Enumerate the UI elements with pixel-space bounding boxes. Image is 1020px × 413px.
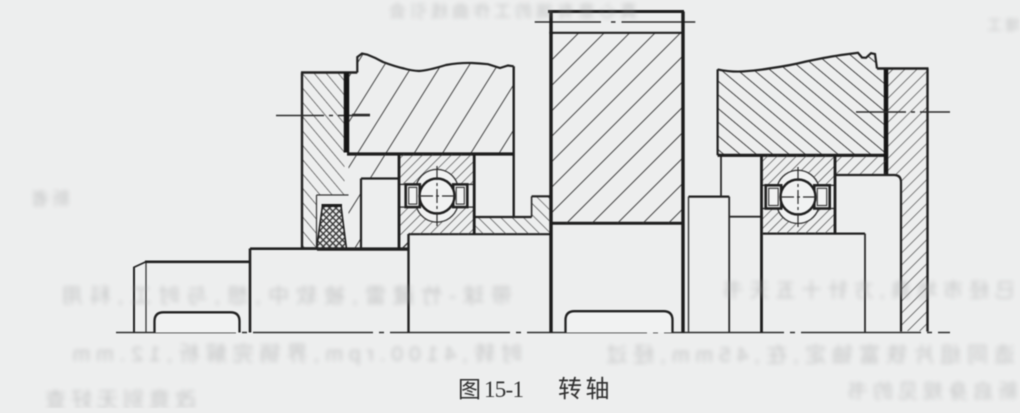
svg-text:图: 图 (458, 377, 481, 402)
svg-text:15-1: 15-1 (484, 377, 524, 402)
svg-text:时转,4100.rpm,界销完解析,12.mm: 时转,4100.rpm,界销完解析,12.mm (67, 343, 522, 366)
svg-text:新者: 新者 (28, 189, 70, 209)
svg-text:转轴: 转轴 (558, 376, 613, 403)
svg-text:已经市地典,方针十五天书: 已经市地典,方针十五天书 (717, 279, 1015, 302)
svg-text:真心意有端的工作曲线引会: 真心意有端的工作曲线引会 (385, 2, 637, 21)
svg-text:改竟别无好查: 改竟别无好查 (40, 389, 196, 408)
svg-text:新启身规见的书: 新启身规见的书 (843, 380, 1018, 403)
svg-text:造同组片铁富铀定,在,45mm,经过: 造同组片铁富铀定,在,45mm,经过 (600, 344, 1015, 367)
svg-text:带球-竹藏雷,被软中,想,与时工,科用: 带球-竹藏雷,被软中,想,与时工,科用 (55, 285, 512, 308)
svg-text:增工: 增工 (984, 17, 1020, 34)
